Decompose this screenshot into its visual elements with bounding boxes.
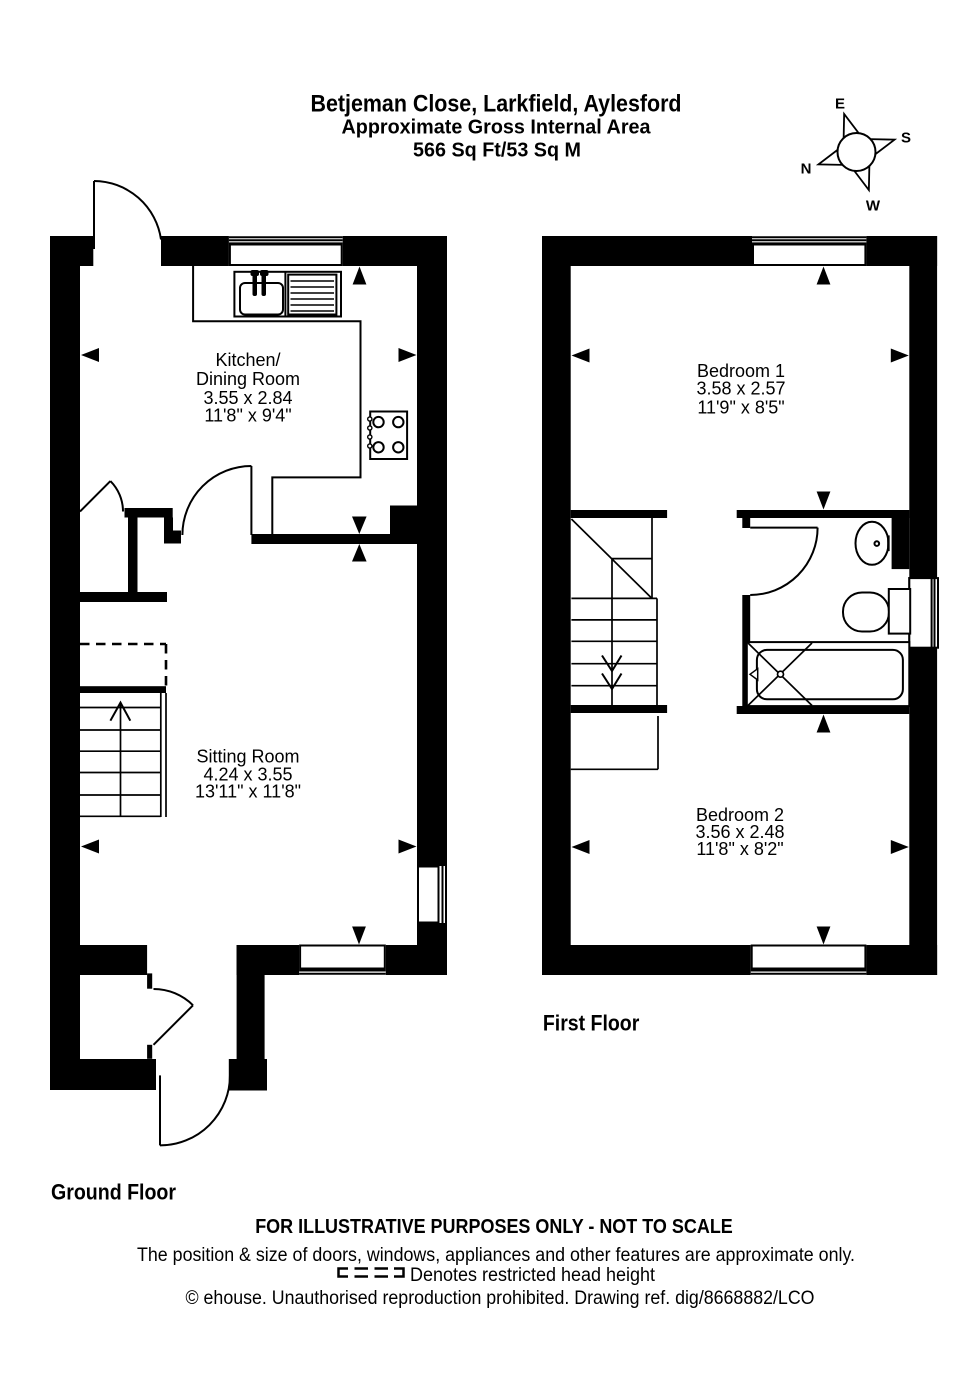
- svg-text:N: N: [801, 161, 812, 178]
- svg-text:566 Sq Ft/53 Sq M: 566 Sq Ft/53 Sq M: [413, 139, 581, 161]
- svg-text:3.58 x 2.57: 3.58 x 2.57: [696, 379, 785, 399]
- svg-text:First Floor: First Floor: [543, 1011, 640, 1036]
- svg-text:W: W: [866, 198, 881, 215]
- svg-text:Approximate Gross Internal Are: Approximate Gross Internal Area: [342, 117, 652, 139]
- svg-text:FOR ILLUSTRATIVE PURPOSES ONLY: FOR ILLUSTRATIVE PURPOSES ONLY - NOT TO …: [255, 1216, 733, 1238]
- svg-text:11'9" x 8'5": 11'9" x 8'5": [697, 398, 784, 418]
- svg-text:13'11" x 11'8": 13'11" x 11'8": [195, 782, 301, 802]
- svg-text:Denotes restricted head height: Denotes restricted head height: [410, 1265, 656, 1286]
- svg-text:Betjeman Close, Larkfield, Ayl: Betjeman Close, Larkfield, Aylesford: [311, 91, 682, 118]
- svg-text:11'8" x 8'2": 11'8" x 8'2": [696, 839, 783, 859]
- svg-text:Kitchen/: Kitchen/: [215, 350, 280, 370]
- svg-text:The position & size of doors,: The position & size of doors, windows, a…: [137, 1245, 855, 1266]
- svg-text:E: E: [835, 96, 845, 113]
- svg-text:Dining Room: Dining Room: [196, 369, 300, 389]
- svg-text:Ground Floor: Ground Floor: [51, 1180, 176, 1205]
- svg-text:© ehouse. Unauthorised reprodu: © ehouse. Unauthorised reproduction proh…: [186, 1288, 815, 1309]
- svg-text:11'8" x 9'4": 11'8" x 9'4": [204, 406, 291, 426]
- svg-text:Sitting Room: Sitting Room: [196, 747, 299, 767]
- svg-text:S: S: [901, 130, 911, 147]
